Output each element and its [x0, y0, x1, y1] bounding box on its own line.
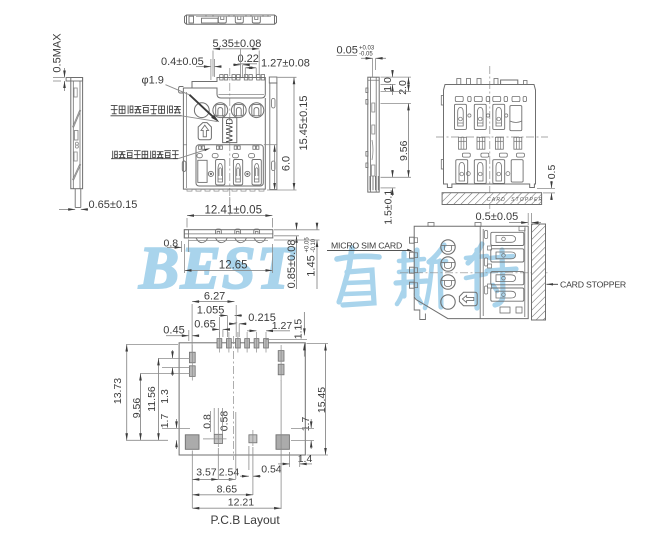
svg-text:CARD STOPPER: CARD STOPPER: [487, 197, 543, 203]
svg-text:0.05: 0.05: [337, 45, 358, 57]
svg-text:-0.05: -0.05: [359, 52, 373, 58]
svg-text:9.56: 9.56: [398, 140, 410, 161]
svg-text:8.65: 8.65: [217, 484, 238, 496]
svg-text:2.0: 2.0: [397, 80, 409, 95]
svg-text:1.45: 1.45: [306, 255, 318, 276]
svg-text:2.54: 2.54: [219, 467, 240, 479]
svg-text:12.41±0.05: 12.41±0.05: [205, 205, 262, 217]
svg-text:12.65: 12.65: [219, 260, 248, 272]
svg-text:φ1.9: φ1.9: [142, 74, 164, 86]
svg-text:0.45: 0.45: [163, 325, 184, 337]
svg-text:1.15: 1.15: [292, 319, 304, 340]
svg-text:0.4±0.05: 0.4±0.05: [161, 56, 204, 68]
svg-text:0.58: 0.58: [218, 411, 230, 432]
svg-text:MICRO SIM CARD: MICRO SIM CARD: [331, 241, 402, 251]
svg-text:1.3: 1.3: [159, 389, 171, 404]
svg-text:1.7: 1.7: [300, 417, 312, 432]
svg-text:12.21: 12.21: [228, 497, 254, 509]
svg-text:0.8: 0.8: [201, 414, 213, 429]
svg-text:0.65±0.15: 0.65±0.15: [89, 199, 138, 211]
svg-text:3.57: 3.57: [196, 467, 217, 479]
svg-text:CARD STOPPER: CARD STOPPER: [560, 279, 626, 289]
svg-text:13.73: 13.73: [112, 378, 124, 404]
svg-text:6.27: 6.27: [204, 290, 225, 302]
svg-text:6.0: 6.0: [281, 156, 293, 171]
svg-text:+0.05: +0.05: [304, 237, 310, 253]
svg-text:P.C.B Layout: P.C.B Layout: [211, 513, 281, 527]
svg-text:15.45: 15.45: [316, 387, 328, 413]
svg-text:WWD: WWD: [225, 118, 235, 143]
svg-text:1.27±0.08: 1.27±0.08: [261, 58, 310, 70]
svg-text:9.56: 9.56: [131, 398, 143, 419]
svg-text:11.56: 11.56: [146, 386, 158, 412]
svg-text:1.055: 1.055: [197, 305, 225, 317]
svg-text:0.5: 0.5: [546, 165, 558, 180]
svg-text:15.45±0.15: 15.45±0.15: [298, 96, 310, 151]
svg-text:1.7: 1.7: [159, 414, 171, 429]
svg-text:0.54: 0.54: [261, 464, 282, 476]
svg-text:0.5MAX: 0.5MAX: [52, 33, 64, 73]
svg-text:0.5±0.05: 0.5±0.05: [476, 211, 519, 223]
